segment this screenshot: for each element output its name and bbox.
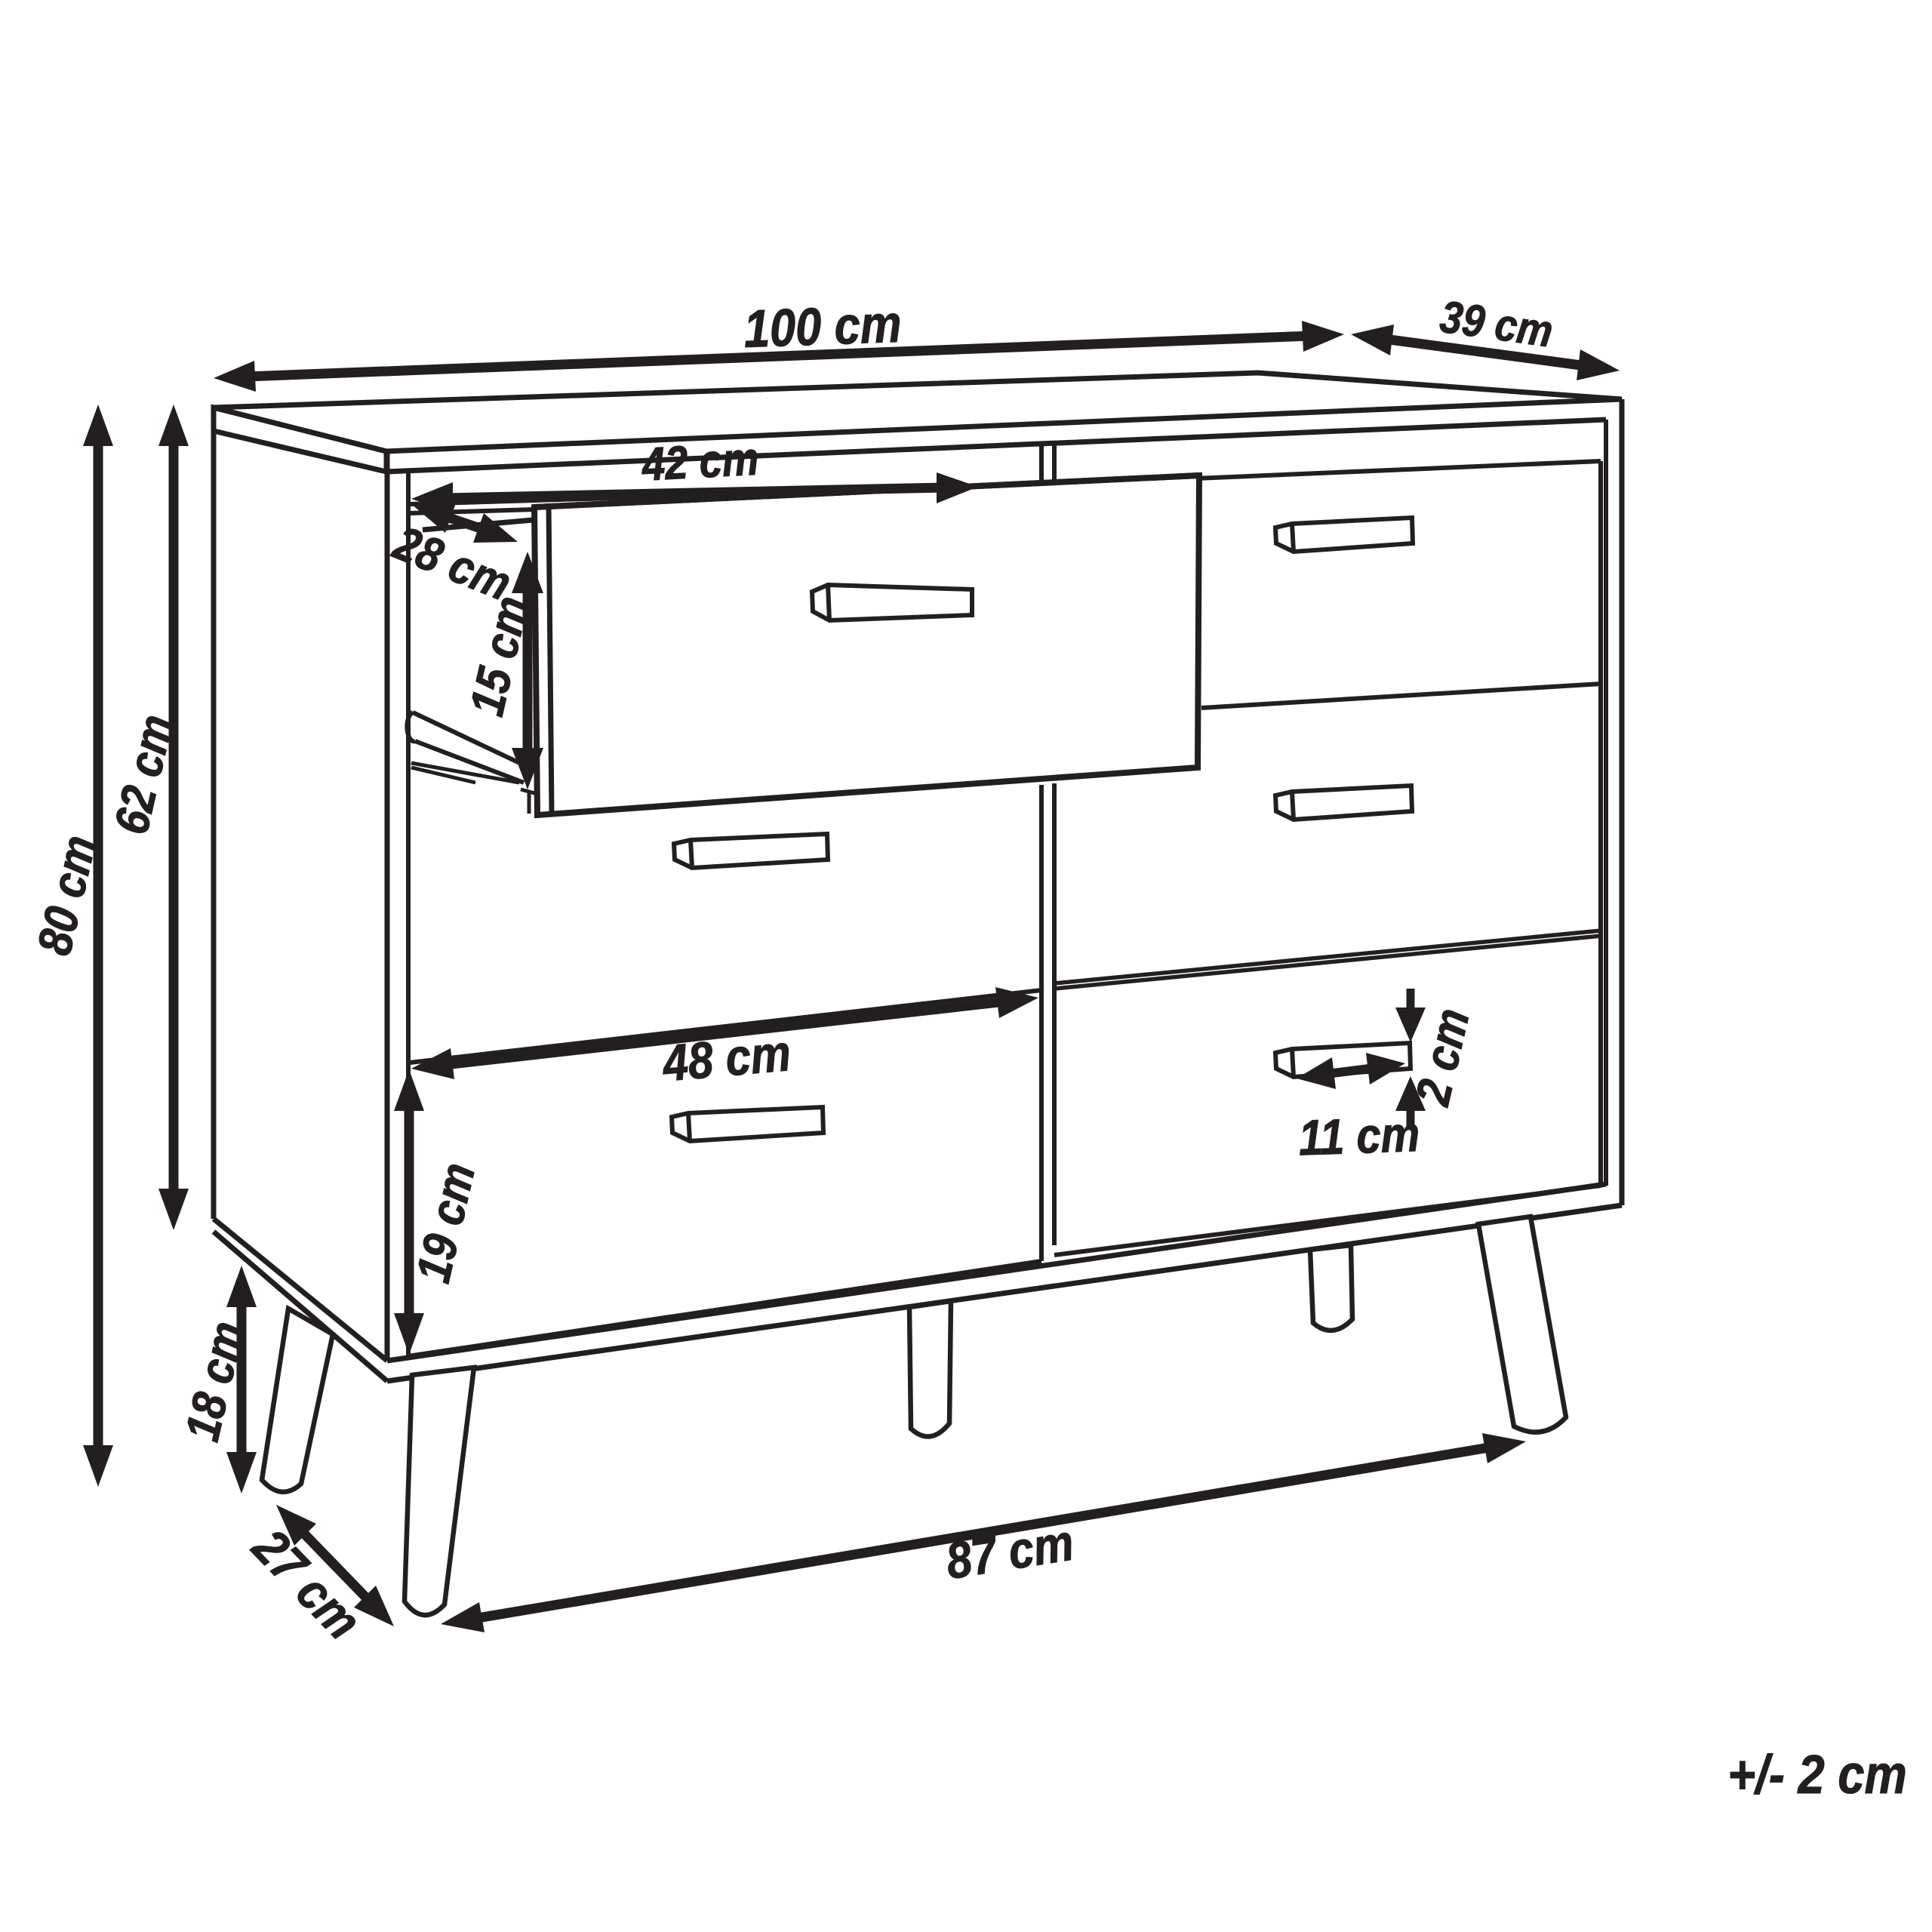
svg-text:+/- 2 cm: +/- 2 cm	[1727, 1745, 1907, 1805]
svg-text:100 cm: 100 cm	[743, 294, 903, 358]
svg-text:48 cm: 48 cm	[659, 1024, 793, 1093]
svg-text:11 cm: 11 cm	[1298, 1107, 1421, 1167]
svg-text:42 cm: 42 cm	[640, 432, 760, 491]
